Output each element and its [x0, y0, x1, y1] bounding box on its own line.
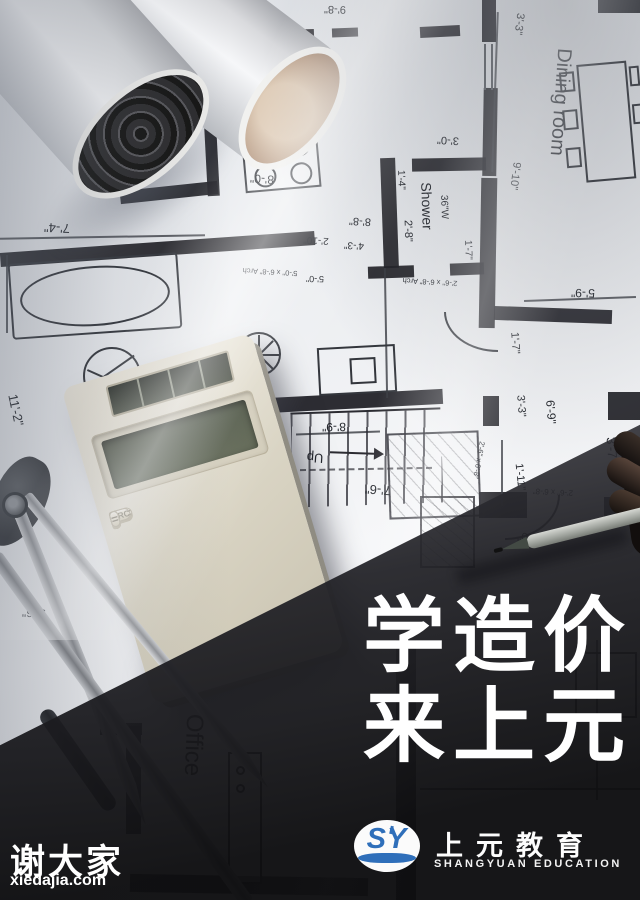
headline-line2: 来上元	[348, 686, 640, 768]
logo-ellipse: SY	[354, 820, 420, 872]
headline-line1: 学造价	[348, 596, 640, 678]
poster-canvas: 7'-4"9'-8"8'-0"3'-0"3'-3"9'-10"1'-4"2'-8…	[0, 0, 640, 900]
shower-width-label: 36"W	[438, 195, 450, 219]
brand-name-english: SHANGYUAN EDUCATION	[434, 858, 622, 870]
room-label: Shower	[418, 182, 436, 230]
stairs-up-label: Up	[306, 450, 324, 466]
watermark-site: xiedajia.com	[10, 872, 106, 890]
room-label: Dining room	[545, 47, 575, 156]
logo-monogram: SY	[354, 823, 420, 856]
logo-swoosh	[358, 853, 416, 863]
